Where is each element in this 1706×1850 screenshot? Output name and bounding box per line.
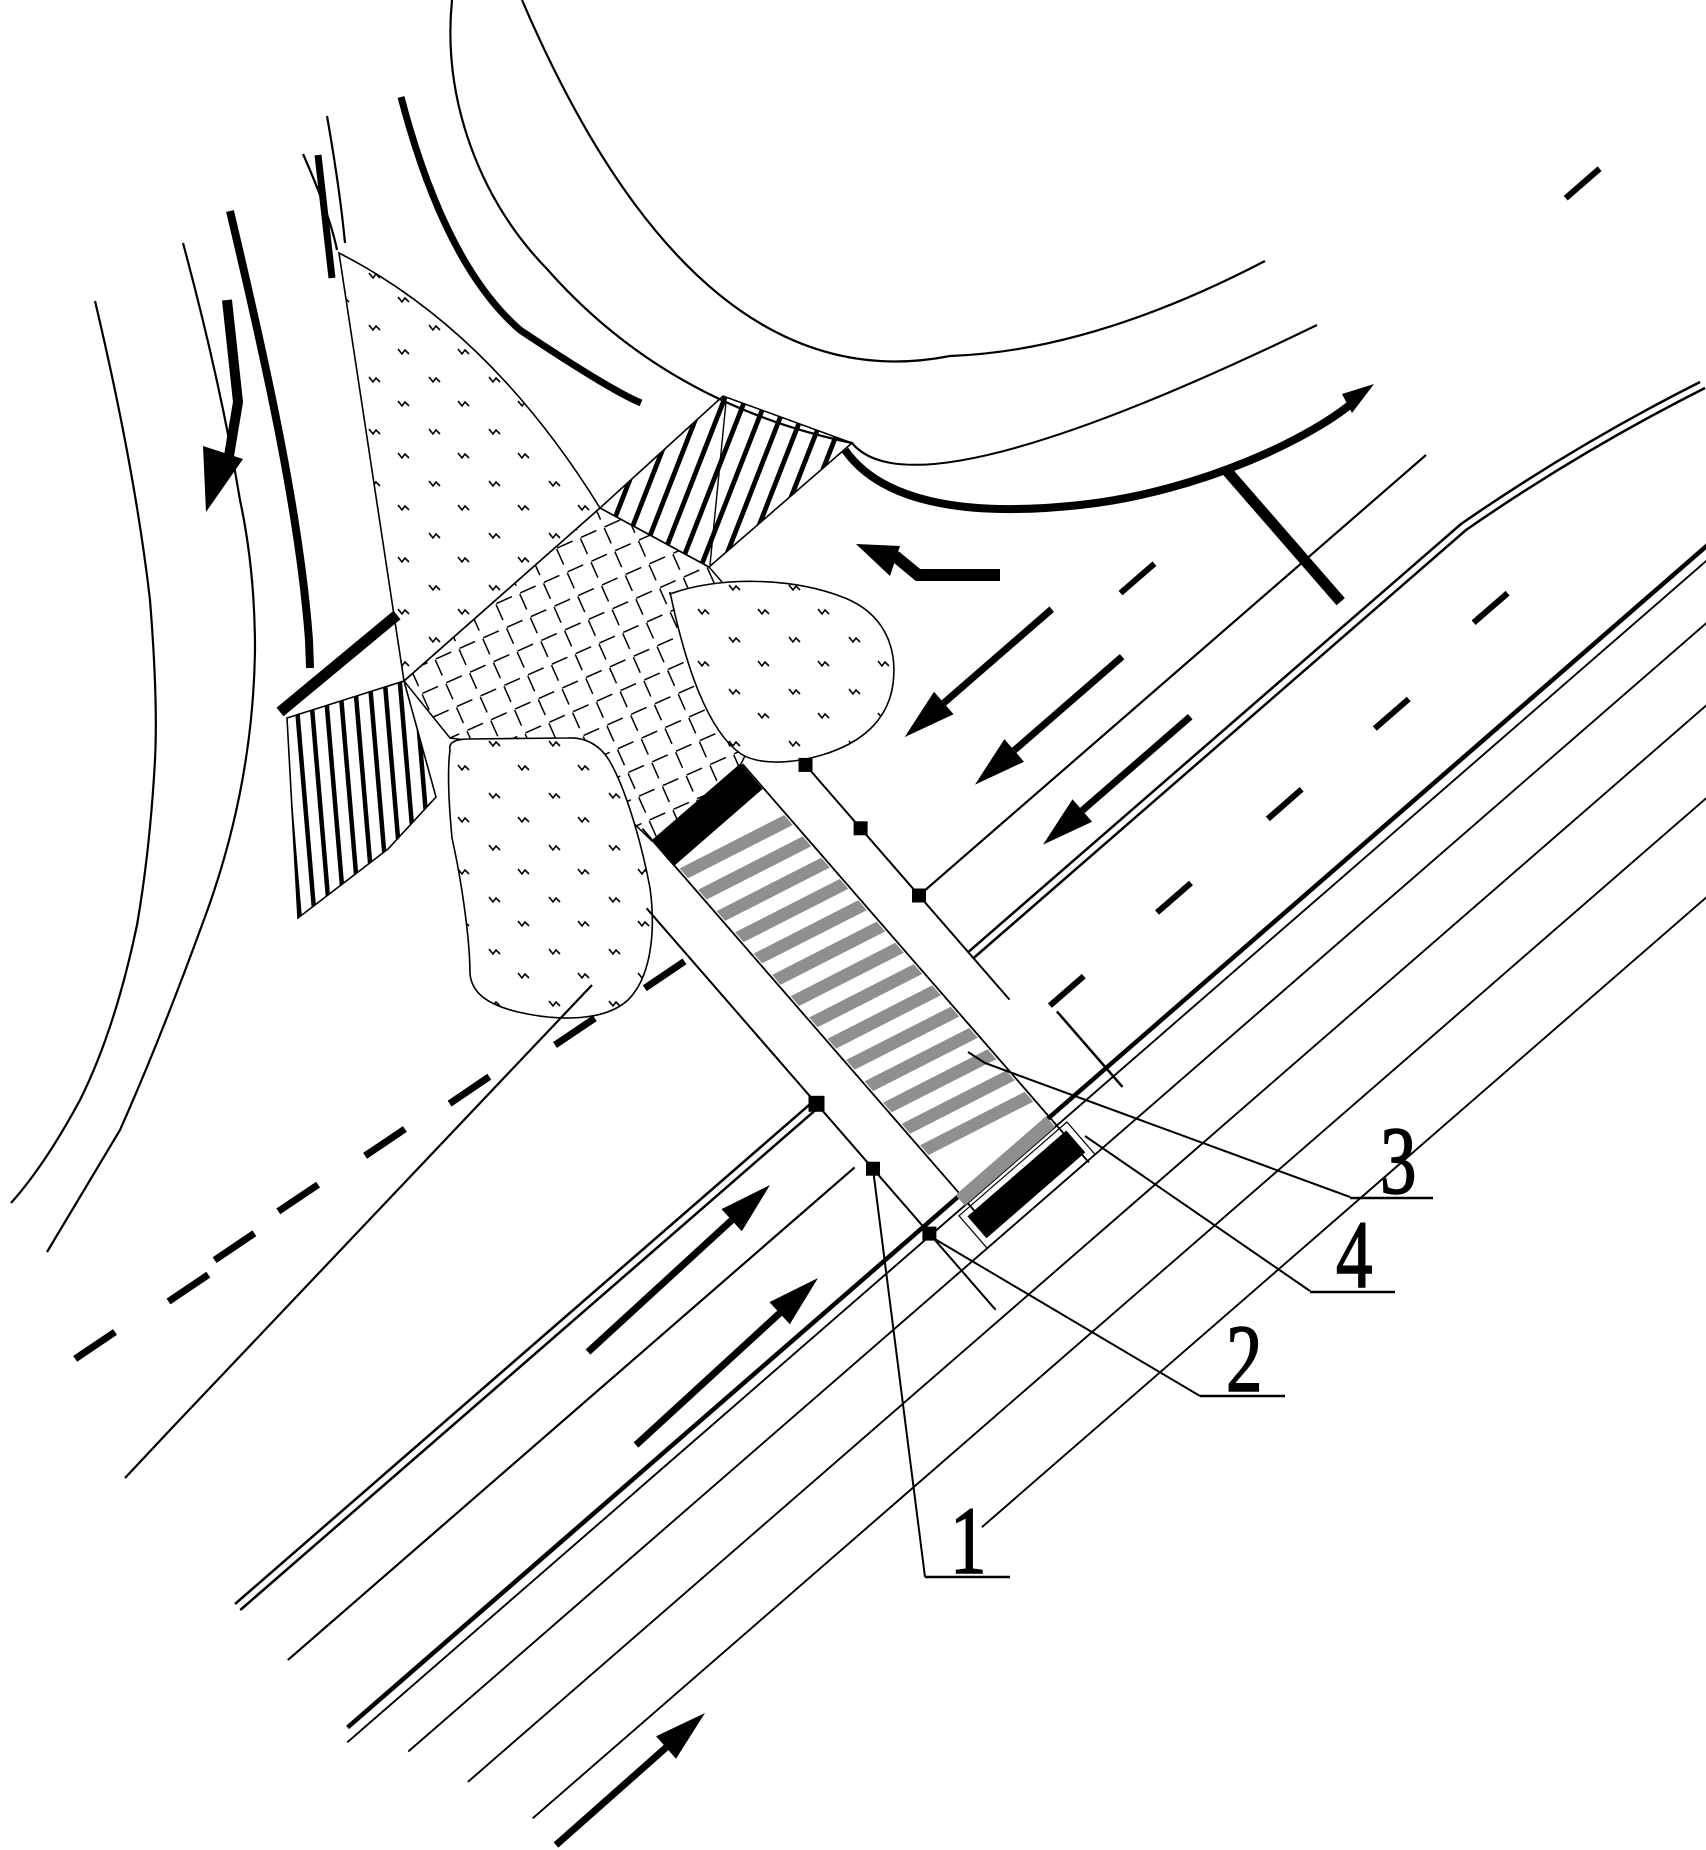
svg-text:1: 1: [950, 1489, 986, 1595]
